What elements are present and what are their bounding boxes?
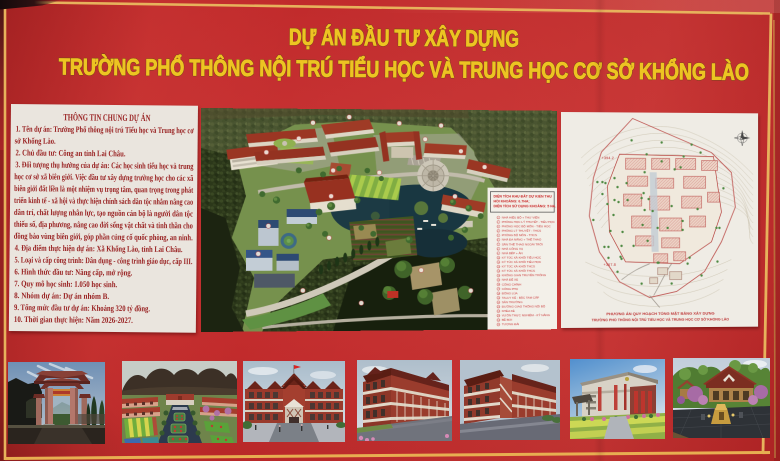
svg-text:KÝ TÚC XÁ KHỐI TIỂU HỌC: KÝ TÚC XÁ KHỐI TIỂU HỌC [502, 254, 542, 259]
svg-text:6. Hình thức đầu tư: Nâng cấp,: 6. Hình thức đầu tư: Nâng cấp, mở rộng. [14, 266, 132, 277]
svg-text:NHÀ BẾP + ĂN: NHÀ BẾP + ĂN [502, 250, 523, 255]
svg-text:8. Nhóm dự án: Dự án nhóm B.: 8. Nhóm dự án: Dự án nhóm B. [14, 290, 109, 301]
svg-text:3. Đối tượng thụ hưởng của dự: 3. Đối tượng thụ hưởng của dự án: Các họ… [15, 159, 194, 171]
svg-text:THÔNG TIN CHUNG DỰ ÁN: THÔNG TIN CHUNG DỰ ÁN [63, 110, 150, 124]
svg-text:BỂ BƠI: BỂ BƠI [502, 317, 512, 322]
svg-text:ĐỒNG LÚA: ĐỒNG LÚA [502, 290, 519, 295]
svg-text:PHÒNG LÝ THUYẾT - THCS: PHÒNG LÝ THUYẾT - THCS [502, 227, 541, 232]
svg-text:4. Địa điểm thực hiện dự án: X: 4. Địa điểm thực hiện dự án: Xã Khổng Là… [15, 243, 183, 255]
svg-text:TRƯỜNG PHỔ THÔNG NỘI TRÚ TIỂU: TRƯỜNG PHỔ THÔNG NỘI TRÚ TIỂU HỌC VÀ TRU… [59, 51, 749, 84]
svg-text:học cơ sở xã biên giới. Việc đ: học cơ sở xã biên giới. Việc đầu tư xây … [14, 171, 194, 183]
svg-text:NHÀ HIỆU BỘ + THƯ VIỆN: NHÀ HIỆU BỘ + THƯ VIỆN [502, 214, 540, 219]
svg-text:VƯỜN THỰC NGHIỆM - KỸ NĂNG: VƯỜN THỰC NGHIỆM - KỸ NĂNG [502, 312, 551, 317]
svg-text:thiếu số, địa phương, nâng cao: thiếu số, địa phương, nâng cao đời sống … [14, 219, 193, 231]
svg-text:1. Tên dự án: Trường Phổ thông: 1. Tên dự án: Trường Phổ thông nội trú T… [16, 124, 194, 136]
svg-text:NHÀ CÔNG VỤ: NHÀ CÔNG VỤ [502, 245, 524, 250]
svg-text:7. Quy mô học sinh: 1.050 học: 7. Quy mô học sinh: 1.050 học sinh. [14, 278, 117, 289]
svg-text:DIỆN TÍCH SỬ DỤNG KHOẢNG: 5 HA: DIỆN TÍCH SỬ DỤNG KHOẢNG: 5 HA. [493, 203, 556, 208]
svg-text:TRƯỜNG PHỔ THÔNG NỘI TRÚ TIỂU: TRƯỜNG PHỔ THÔNG NỘI TRÚ TIỂU HỌC VÀ TRU… [592, 316, 730, 322]
svg-text:KÝ TÚC XÁ KHỐI THCS: KÝ TÚC XÁ KHỐI THCS [502, 268, 535, 273]
svg-text:TƯỢNG ĐÀI: TƯỢNG ĐÀI [502, 322, 520, 326]
svg-text:TALUY KÈ - BẬC TAM CẤP: TALUY KÈ - BẬC TAM CẤP [502, 294, 539, 299]
svg-text:KHÈA KÈ: KHÈA KÈ [502, 308, 515, 313]
svg-text:biên giới đất liền là một nhiệ: biên giới đất liền là một nhiệm vụ trọng… [14, 183, 193, 195]
svg-text:đồng bào vùng biên giới, góp p: đồng bào vùng biên giới, góp phần củng c… [14, 231, 193, 243]
svg-text:KÝ TÚC XÁ KHỐI TIỂU HỌC: KÝ TÚC XÁ KHỐI TIỂU HỌC [502, 259, 542, 264]
svg-text:ĐƯỜNG GIAO THÔNG NỘI BỘ: ĐƯỜNG GIAO THÔNG NỘI BỘ [502, 303, 546, 308]
svg-text:CỔNG CHÍNH: CỔNG CHÍNH [502, 281, 522, 286]
svg-text:KHÔNG GIAN TRUYỀN THỐNG: KHÔNG GIAN TRUYỀN THỐNG [502, 272, 547, 277]
svg-text:+367.8: +367.8 [603, 262, 616, 267]
svg-text:10. Thời gian thực hiện: Năm 2: 10. Thời gian thực hiện: Năm 2026-2027. [14, 314, 133, 325]
svg-text:NHÀ ĐA NĂNG + THỂ THAO: NHÀ ĐA NĂNG + THỂ THAO [502, 236, 542, 241]
svg-text:sở Khổng Lào.: sở Khổng Lào. [15, 135, 56, 145]
svg-text:CỔNG PHỤ: CỔNG PHỤ [502, 285, 519, 290]
svg-text:PHÒNG HỌC BỘ MÔN - TIỂU HỌC: PHÒNG HỌC BỘ MÔN - TIỂU HỌC [502, 223, 552, 228]
svg-text:PHÒNG BỘ MÔN - THCS: PHÒNG BỘ MÔN - THCS [502, 232, 537, 237]
svg-text:9. Tổng mức đầu tư dự án: Khoả: 9. Tổng mức đầu tư dự án: Khoảng 320 tỷ … [14, 302, 150, 313]
svg-text:triển kinh tế - xã hội và thực: triển kinh tế - xã hội và thực hiện chín… [14, 195, 193, 207]
svg-text:NHÀ ĐỂ XE: NHÀ ĐỂ XE [502, 276, 518, 281]
svg-text:SÂN THỂ THAO NGOÀI TRỜI: SÂN THỂ THAO NGOÀI TRỜI [502, 241, 543, 246]
svg-text:HỒI KHOẢNG: 6.7HA;: HỒI KHOẢNG: 6.7HA; [493, 198, 529, 203]
svg-text:dân trí, chất lượng nhân lực,: dân trí, chất lượng nhân lực, tạo nguồn … [14, 207, 193, 219]
svg-text:5. Loại và cấp công trình: Dân: 5. Loại và cấp công trình: Dân dụng - cô… [14, 254, 192, 266]
svg-text:KÝ TÚC XÁ KHỐI THCS: KÝ TÚC XÁ KHỐI THCS [502, 263, 535, 268]
svg-text:DIỆN TÍCH KHU ĐẤT DỰ KIẾN THU: DIỆN TÍCH KHU ĐẤT DỰ KIẾN THU [493, 193, 552, 198]
svg-text:SÂN TRƯỜNG: SÂN TRƯỜNG [502, 299, 523, 304]
svg-text:+394.2: +394.2 [601, 155, 614, 160]
svg-text:PHÒNG HỌC LÝ THUYẾT - TIỂU HỌC: PHÒNG HỌC LÝ THUYẾT - TIỂU HỌC [502, 219, 556, 224]
svg-text:2. Chủ đầu tư: Công an tỉnh La: 2. Chủ đầu tư: Công an tỉnh Lai Châu. [15, 147, 125, 158]
svg-text:PHƯƠNG ÁN QUY HOẠCH TỔNG MẶT B: PHƯƠNG ÁN QUY HOẠCH TỔNG MẶT BẰNG XÂY DỰ… [606, 311, 714, 317]
